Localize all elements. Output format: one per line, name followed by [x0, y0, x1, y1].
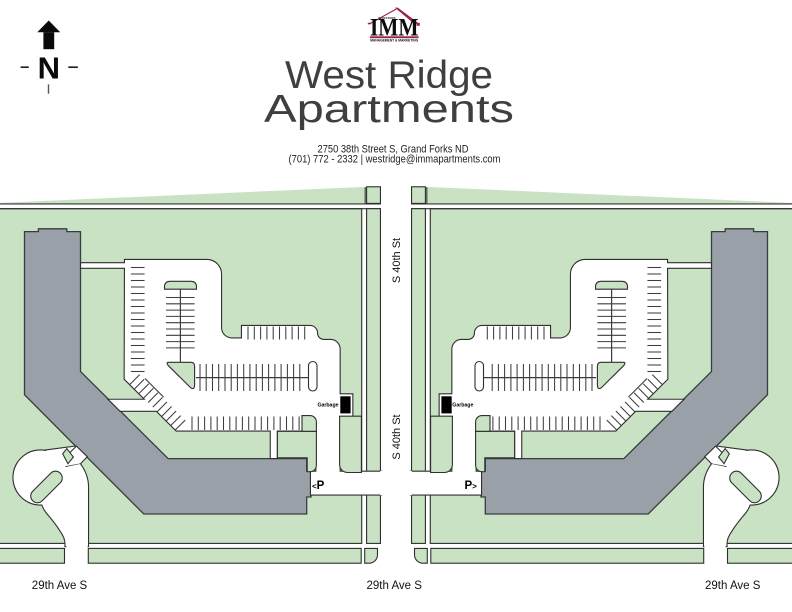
svg-text:(701) 772 - 2332 | westridge: (701) 772 - 2332 | westridge@immapartmen… [289, 154, 501, 166]
svg-text:N: N [38, 51, 60, 86]
svg-text:29th Ave S: 29th Ave S [367, 580, 423, 592]
svg-text:Garbage: Garbage [317, 403, 338, 409]
svg-text:Apartments: Apartments [264, 88, 514, 131]
svg-text:MANAGEMENT & MARKETING: MANAGEMENT & MARKETING [370, 39, 418, 43]
svg-text:29th Ave S: 29th Ave S [705, 580, 761, 592]
svg-text:S 40th St: S 40th St [391, 238, 403, 283]
svg-text:S 40th St: S 40th St [391, 414, 403, 459]
svg-text:Garbage: Garbage [452, 403, 473, 409]
svg-text:<P: <P [312, 480, 325, 492]
svg-text:P>: P> [465, 480, 478, 492]
svg-text:29th Ave S: 29th Ave S [32, 580, 88, 592]
